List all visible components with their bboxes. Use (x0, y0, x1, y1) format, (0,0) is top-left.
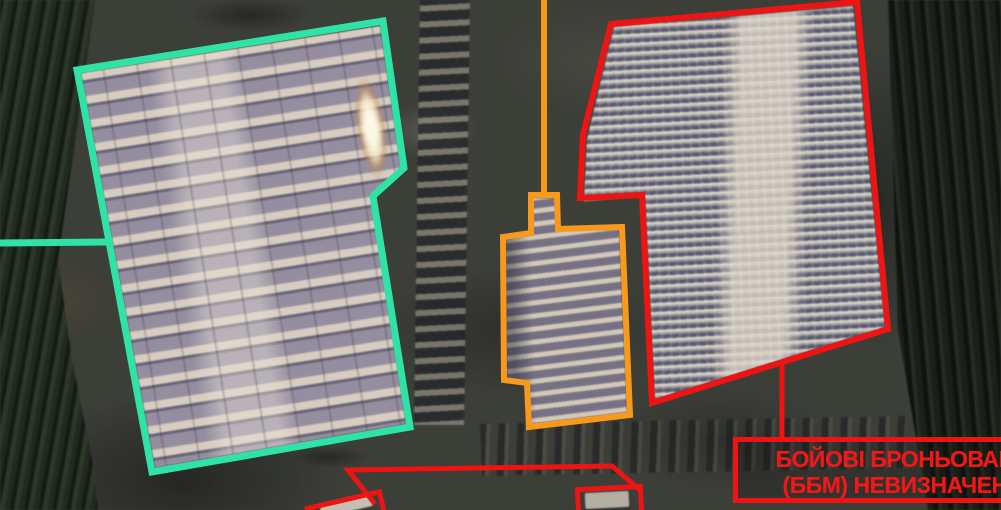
teal-leader-line (0, 242, 108, 243)
teal-area-outline (77, 21, 410, 472)
small-target-box-right (577, 486, 641, 510)
armored-vehicles-label-line2: (ББМ) НЕВИЗНАЧЕНІ (738, 472, 1001, 498)
armored-vehicles-label: БОЙОВІ БРОНЬОВАНІ (ББМ) НЕВИЗНАЧЕНІ (733, 437, 1001, 503)
armored-vehicles-label-line1: БОЙОВІ БРОНЬОВАНІ (738, 446, 1001, 472)
annotated-satellite-image: БОЙОВІ БРОНЬОВАНІ (ББМ) НЕВИЗНАЧЕНІ (0, 0, 1001, 510)
orange-area-outline (503, 195, 630, 427)
annotation-overlay (0, 0, 1001, 510)
bottom-connector-line (348, 466, 641, 504)
